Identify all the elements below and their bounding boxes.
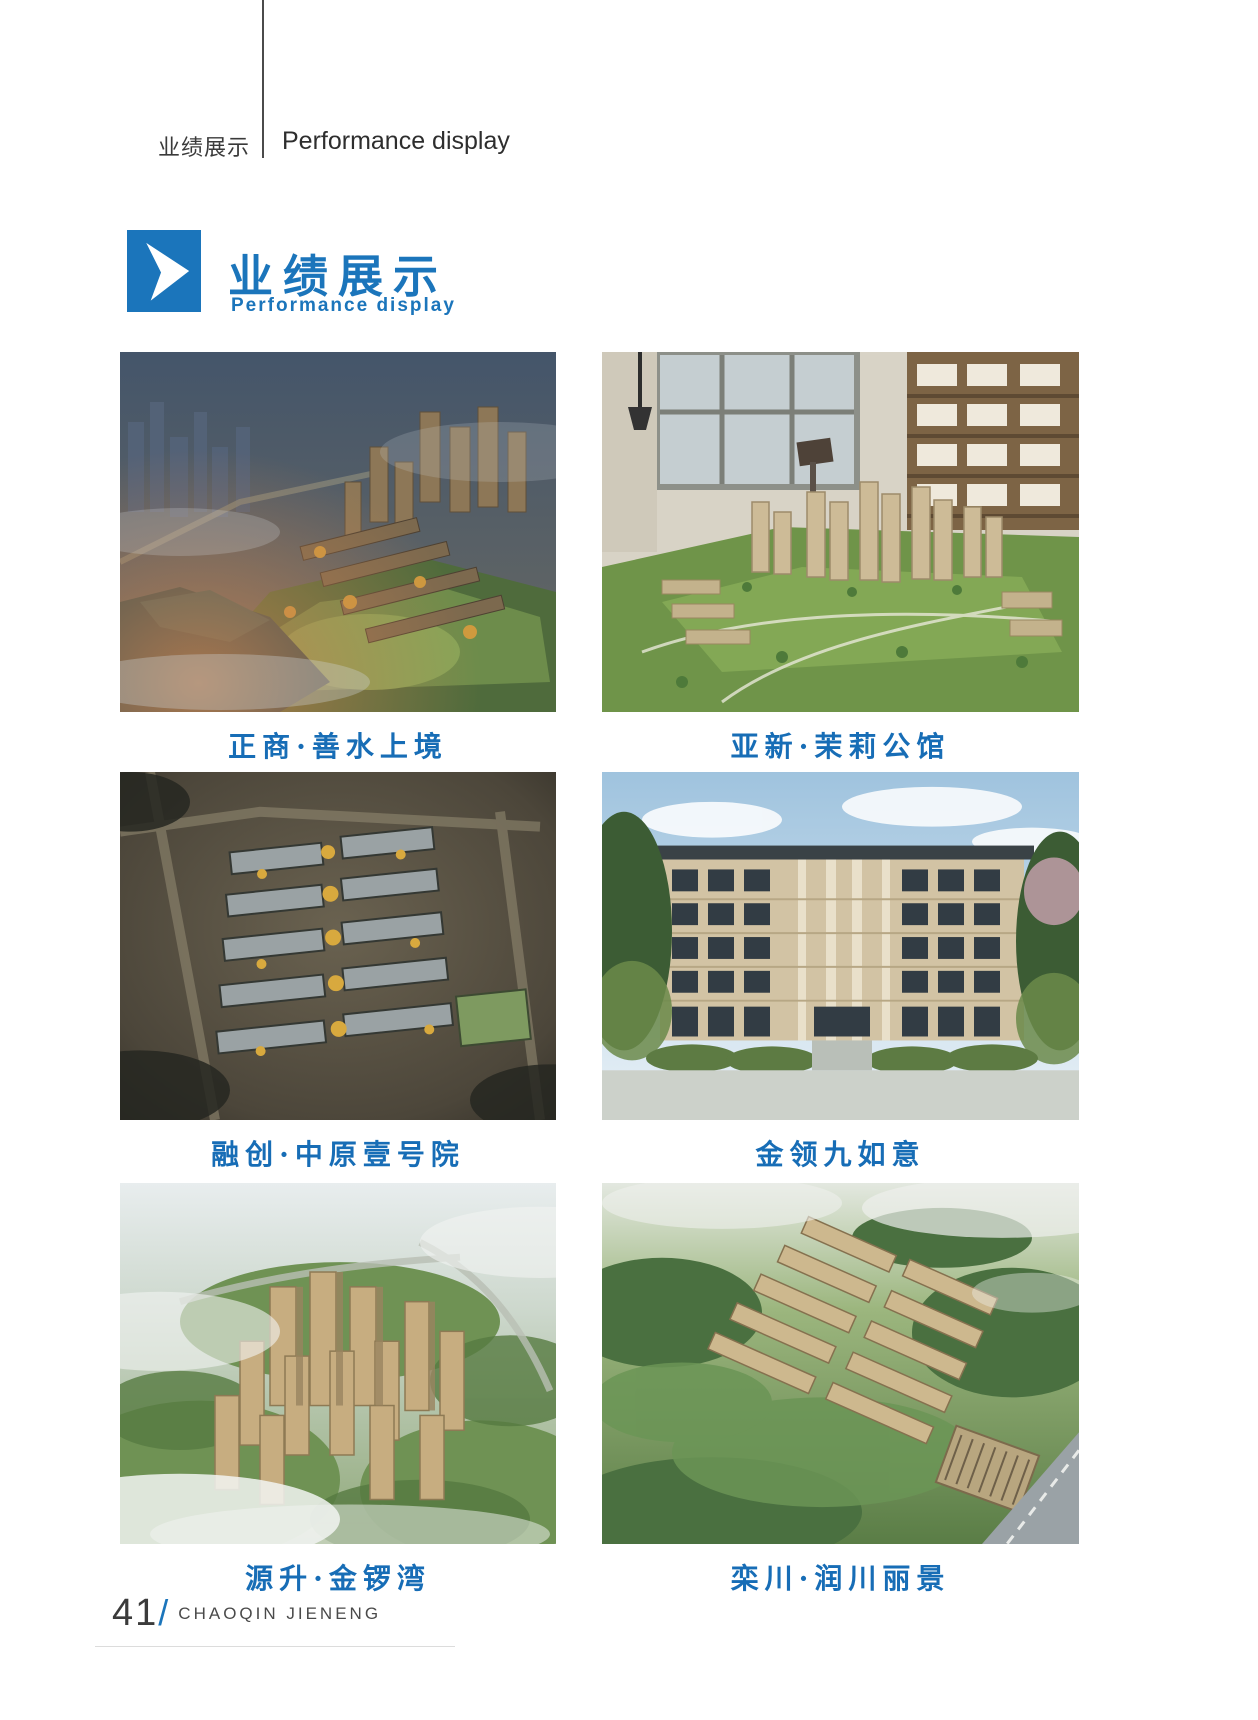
project-photo-4 <box>602 772 1079 1120</box>
chevron-right-icon <box>127 230 201 312</box>
page-footer: 41/CHAOQIN JIENENG <box>112 1592 381 1635</box>
project-caption: 源升·金锣湾 <box>120 1557 556 1597</box>
project-caption: 融创·中原壹号院 <box>120 1133 556 1173</box>
project-caption: 亚新·茉莉公馆 <box>602 725 1079 765</box>
project-card: 正商·善水上境 <box>120 352 556 765</box>
header-divider <box>262 0 264 158</box>
section-title-en: Performance display <box>231 295 456 317</box>
project-caption: 正商·善水上境 <box>120 725 556 765</box>
brochure-page: 业绩展示 Performance display 业绩展示 Performanc… <box>0 0 1258 1720</box>
project-card: 亚新·茉莉公馆 <box>602 352 1079 765</box>
project-card: 金领九如意 <box>602 772 1079 1173</box>
project-photo-3 <box>120 772 556 1120</box>
project-caption: 栾川·润川丽景 <box>602 1557 1079 1597</box>
project-card: 栾川·润川丽景 <box>602 1183 1079 1597</box>
header-title-en: Performance display <box>282 127 510 156</box>
footer-slash: / <box>158 1592 168 1633</box>
footer-rule <box>95 1646 455 1647</box>
project-card: 源升·金锣湾 <box>120 1183 556 1597</box>
section-marker <box>127 230 201 312</box>
page-number: 41 <box>112 1592 158 1634</box>
header-title-zh: 业绩展示 <box>0 130 250 162</box>
project-card: 融创·中原壹号院 <box>120 772 556 1173</box>
company-name: CHAOQIN JIENENG <box>178 1604 381 1623</box>
project-caption: 金领九如意 <box>602 1133 1079 1173</box>
project-photo-6 <box>602 1183 1079 1544</box>
project-photo-1 <box>120 352 556 712</box>
project-photo-2 <box>602 352 1079 712</box>
project-photo-5 <box>120 1183 556 1544</box>
